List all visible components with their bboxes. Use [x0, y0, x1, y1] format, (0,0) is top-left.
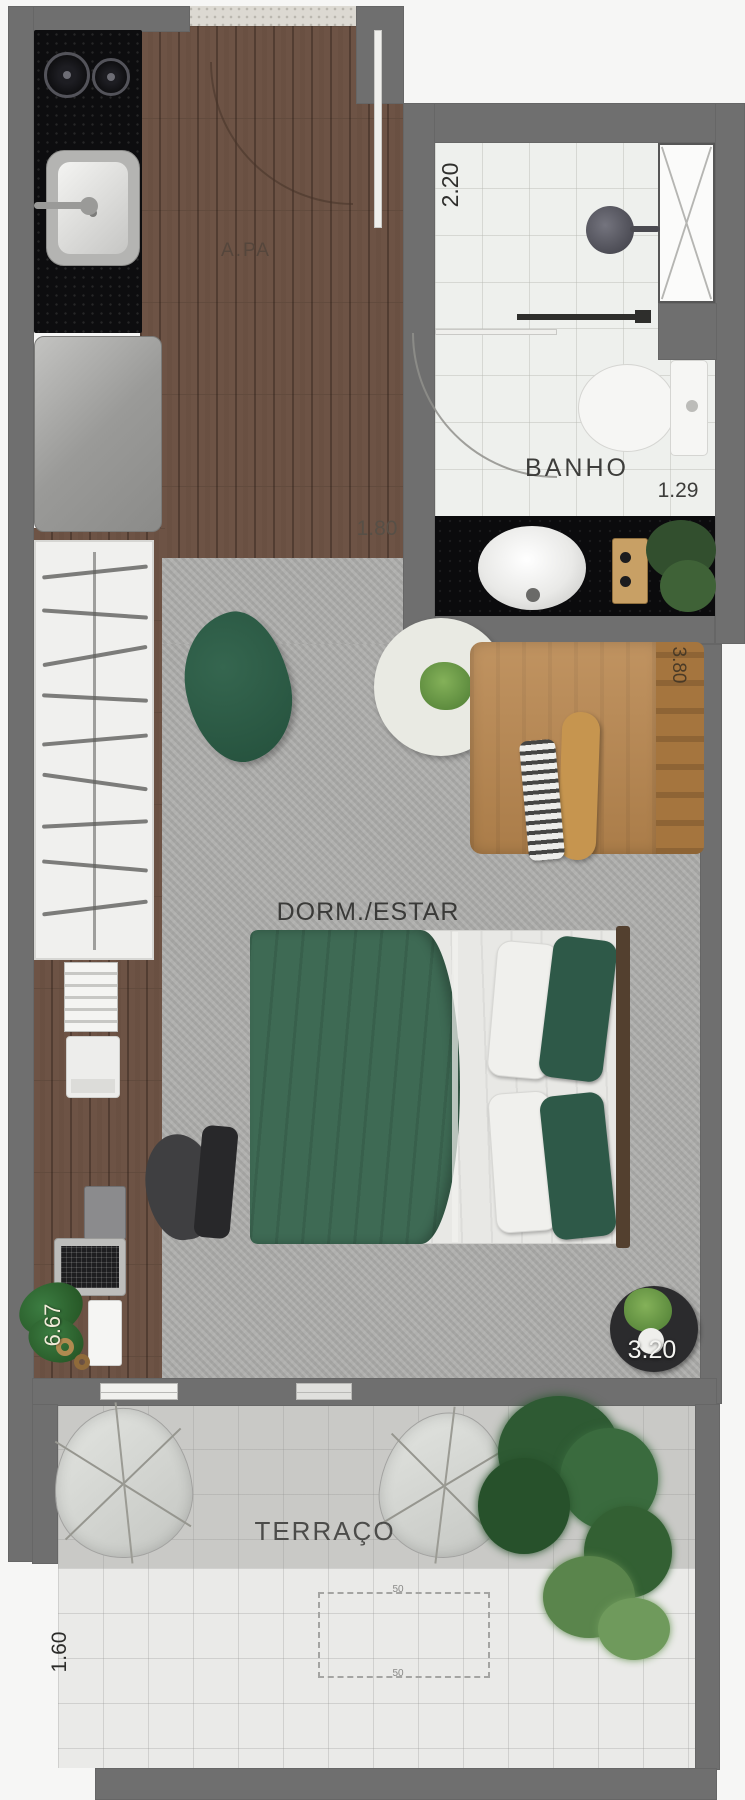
- detail-dimension-top: 50: [384, 1582, 412, 1596]
- dimension-apa-width: 1.80: [340, 516, 414, 542]
- sheet-fold-line: [452, 932, 458, 1242]
- shower-arm-icon: [630, 226, 660, 232]
- drying-rack: [64, 962, 118, 1032]
- detail-dimension-bottom: 50: [384, 1666, 412, 1680]
- dimension-unit-length: 6.67: [40, 1286, 66, 1364]
- room-label-apa: A.PA: [204, 238, 288, 264]
- cooktop-burner-icon: [92, 58, 130, 96]
- toilet-bowl: [578, 364, 676, 452]
- bathroom-door-leaf: [435, 329, 557, 335]
- foliage-blob: [598, 1598, 670, 1660]
- laptop-keyboard: [61, 1246, 119, 1288]
- wall-bathroom-right: [715, 103, 745, 644]
- dimension-shower-width: 2.20: [437, 153, 463, 217]
- table-plant-icon: [420, 662, 472, 710]
- nightstand-plant-icon: [624, 1288, 672, 1332]
- tray-dish-icon: [620, 552, 631, 563]
- wall-bathroom-top: [403, 103, 745, 143]
- bed-duvet: [250, 930, 460, 1244]
- flush-button-icon: [686, 400, 698, 412]
- notepad: [88, 1300, 122, 1366]
- fridge: [34, 336, 162, 532]
- terrace-chair: [47, 1401, 200, 1565]
- cooktop-burner-icon: [44, 52, 90, 98]
- window-room-bottom-left: [100, 1383, 178, 1400]
- wall-terrace-right: [695, 1404, 720, 1770]
- vanity-plant-icon: [660, 560, 716, 612]
- room-label-dorm-estar: DORM./ESTAR: [258, 896, 478, 928]
- wardrobe: [34, 540, 154, 960]
- duct-shaft: [658, 143, 715, 303]
- dimension-terrace-depth: 1.60: [48, 1620, 72, 1684]
- shower-glass-partition: [517, 314, 643, 320]
- vanity-tray: [612, 538, 648, 604]
- floor-plan: A.PA 2.20 BANHO 1.29 1.80 3.80 DORM./EST…: [0, 0, 745, 1800]
- entry-door-leaf: [374, 30, 382, 228]
- room-label-banho: BANHO: [510, 452, 644, 484]
- shower-head-icon: [586, 206, 634, 254]
- shower-glass-end: [635, 310, 651, 323]
- tray-dish-icon: [620, 576, 631, 587]
- terrace-door: [296, 1383, 352, 1400]
- headboard: [616, 926, 630, 1248]
- mug-icon: [74, 1354, 90, 1370]
- wall-under-shaft: [658, 303, 717, 360]
- sofa-bolster-pillow: [557, 711, 600, 860]
- room-label-terraco: TERRAÇO: [240, 1514, 410, 1548]
- dimension-room-width: 3.20: [608, 1334, 696, 1366]
- desk-monitor: [84, 1186, 126, 1240]
- washer: [66, 1036, 120, 1098]
- vanity-faucet-icon: [526, 588, 540, 602]
- dimension-banho-width: 1.29: [642, 478, 714, 504]
- faucet-knob-icon: [80, 197, 98, 215]
- foliage-blob: [478, 1458, 570, 1554]
- wall-terrace-bottom: [95, 1768, 717, 1800]
- shaft-x-icon: [660, 145, 713, 301]
- wall-top-left: [8, 6, 190, 32]
- dimension-living-depth: 3.80: [667, 633, 689, 697]
